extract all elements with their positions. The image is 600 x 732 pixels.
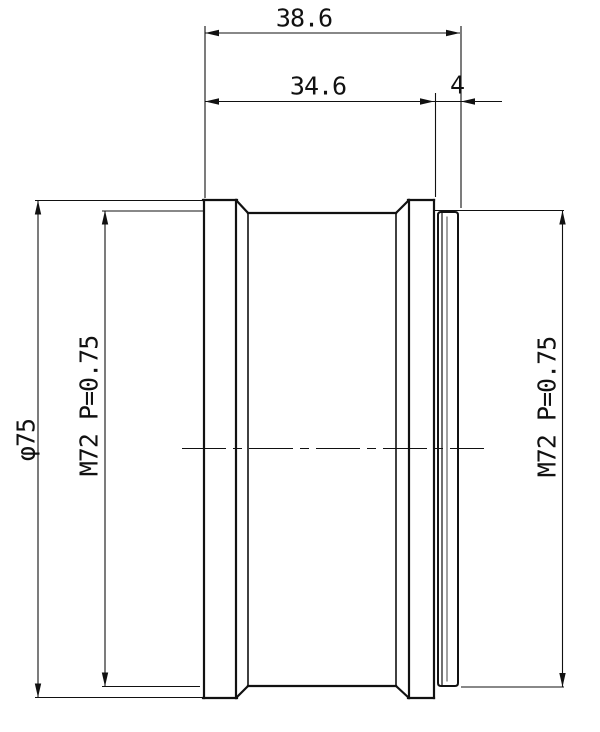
- arrow-thread-right-bottom: [559, 673, 565, 687]
- technical-drawing-canvas: 38.6 34.6 4 φ75 M72 P=0.75 M72 P=0.75: [0, 0, 600, 732]
- arrow-diameter-top: [35, 201, 41, 215]
- dimension-arrowheads: [35, 30, 566, 698]
- dim-label-total-length: 38.6: [276, 6, 332, 31]
- arrow-body-left: [205, 98, 219, 104]
- arrow-thread-right-top: [559, 211, 565, 225]
- arrow-thread-left-bottom: [102, 673, 108, 687]
- arrow-thread-left-top: [102, 211, 108, 225]
- thread-runout-top-right: [396, 200, 409, 213]
- thread-runout-bottom-right: [396, 686, 409, 698]
- dim-label-ring-length: 4: [450, 73, 464, 98]
- dim-label-body-length: 34.6: [290, 74, 346, 99]
- arrow-body-right: [420, 98, 434, 104]
- dim-label-outer-diameter: φ75: [14, 419, 39, 461]
- dim-label-thread-left: M72 P=0.75: [77, 336, 102, 477]
- arrow-total-right: [446, 30, 460, 36]
- thread-runout-bottom-left: [236, 686, 248, 698]
- dimension-lines: [35, 26, 564, 698]
- arrow-diameter-bottom: [35, 684, 41, 698]
- arrow-total-left: [205, 30, 219, 36]
- thread-runout-top-left: [236, 200, 248, 213]
- dim-label-thread-right: M72 P=0.75: [535, 337, 560, 478]
